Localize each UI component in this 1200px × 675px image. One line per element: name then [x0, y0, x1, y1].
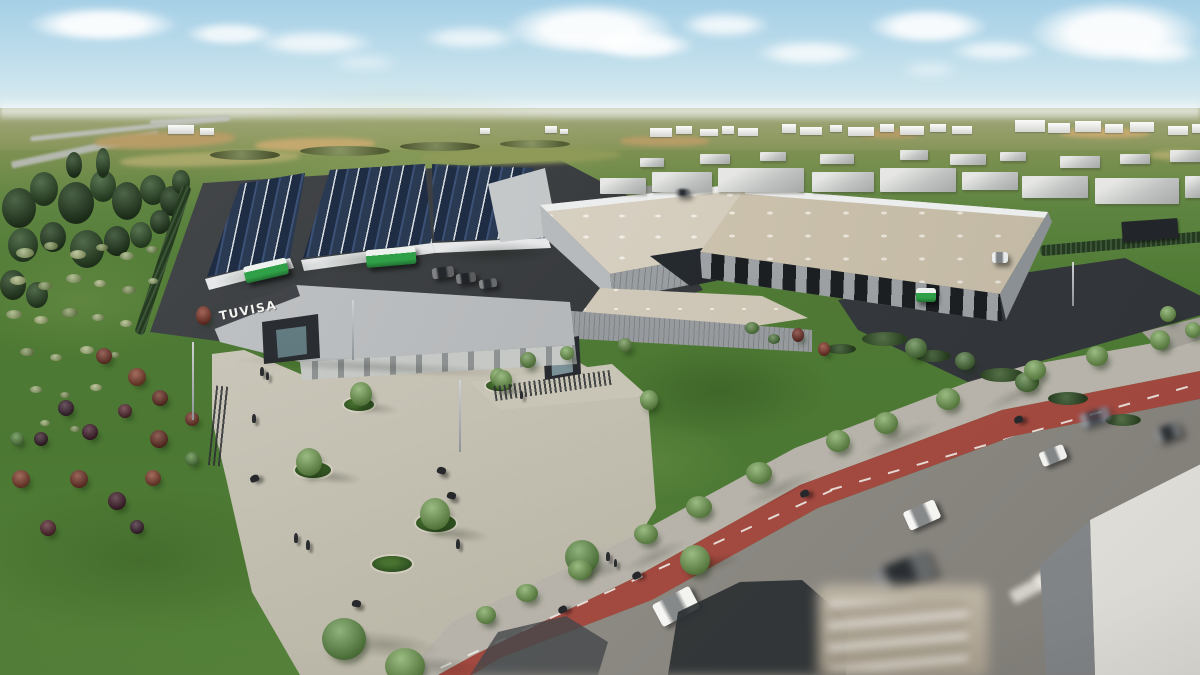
car — [1153, 421, 1183, 444]
person — [456, 539, 460, 549]
ibldg — [962, 172, 1018, 190]
scrub — [210, 150, 280, 160]
conifer — [0, 270, 26, 300]
cyclist — [446, 491, 457, 500]
pole — [1072, 262, 1074, 306]
otree — [10, 432, 24, 446]
ltree — [296, 448, 322, 476]
person — [606, 552, 610, 561]
otree — [12, 470, 30, 488]
scrub — [300, 146, 390, 156]
car — [478, 278, 497, 289]
dbldg — [952, 126, 972, 134]
car — [455, 272, 476, 285]
car — [431, 266, 454, 280]
dbldg — [930, 124, 946, 132]
ibldg — [1060, 156, 1100, 168]
dbldg — [738, 128, 758, 136]
dbldg — [900, 126, 924, 135]
bush — [6, 310, 22, 319]
cyclist — [436, 466, 447, 475]
bush — [745, 322, 759, 334]
board — [1121, 218, 1178, 242]
person — [252, 414, 256, 423]
ltree — [322, 618, 366, 660]
person — [260, 367, 264, 376]
dbldg — [200, 128, 214, 135]
person — [294, 533, 298, 543]
scrub — [500, 140, 570, 148]
bush — [94, 280, 106, 287]
ibldg — [700, 154, 730, 164]
bush — [70, 426, 80, 432]
ltree — [686, 496, 712, 518]
bush — [96, 244, 108, 251]
cloud — [28, 6, 178, 40]
ibldg — [600, 178, 646, 194]
bush — [34, 316, 48, 324]
foreground-blur-steps — [828, 600, 968, 670]
ltree — [476, 606, 496, 624]
ltree — [568, 560, 592, 580]
shade — [232, 352, 522, 381]
dbldg — [545, 126, 557, 133]
bush — [70, 250, 86, 259]
dbldg — [1168, 126, 1188, 135]
conifer — [66, 152, 82, 178]
otree — [108, 492, 126, 510]
otree — [34, 432, 48, 446]
dbldg — [700, 129, 718, 136]
pole — [192, 342, 194, 420]
cloud — [330, 55, 400, 69]
ltree — [905, 338, 927, 358]
bush — [62, 308, 78, 317]
otree — [70, 470, 88, 488]
dbldg — [830, 125, 842, 132]
ltree — [560, 346, 574, 360]
pole — [352, 300, 354, 360]
bush — [768, 334, 780, 344]
ibldg — [820, 154, 854, 164]
ibldg — [1185, 176, 1200, 198]
bush — [30, 386, 42, 393]
dbldg — [1105, 124, 1123, 133]
dbldg — [800, 127, 822, 135]
ibldg — [1095, 178, 1179, 204]
rack — [208, 385, 230, 466]
ltree — [936, 388, 960, 410]
shade — [860, 414, 940, 464]
cloud — [680, 12, 770, 36]
dbldg — [676, 126, 692, 134]
car — [1038, 444, 1068, 468]
dbldg — [1048, 123, 1070, 133]
person — [306, 540, 310, 550]
bush — [120, 320, 132, 327]
person — [266, 372, 269, 380]
car — [676, 189, 690, 196]
ltree — [746, 462, 772, 484]
otree — [118, 404, 132, 418]
cyclist — [351, 599, 361, 607]
cloud — [1120, 40, 1200, 62]
otree — [58, 400, 74, 416]
otree — [128, 368, 146, 386]
ibldg — [1000, 152, 1026, 161]
bus — [916, 288, 936, 302]
shade — [436, 240, 557, 266]
dbldg — [1075, 121, 1101, 132]
bush — [50, 354, 62, 361]
pole — [459, 380, 461, 452]
otree — [818, 342, 830, 356]
dbldg — [650, 128, 672, 137]
otree — [145, 470, 161, 486]
cyclist — [1013, 415, 1024, 425]
ibldg — [880, 168, 956, 192]
car — [992, 252, 1008, 263]
otree — [152, 390, 168, 406]
ltree — [1185, 322, 1200, 338]
bush — [10, 276, 26, 285]
person — [614, 559, 617, 567]
ltree — [1086, 346, 1108, 366]
ltree — [640, 390, 658, 410]
dbldg — [848, 127, 874, 136]
cloud — [900, 62, 960, 76]
ibldg — [1120, 154, 1150, 164]
ibldg — [950, 154, 986, 165]
cyclist — [557, 604, 568, 614]
scrub — [400, 142, 480, 151]
ibldg — [1170, 150, 1200, 162]
planter — [372, 556, 412, 572]
architectural-render-scene: TUVISA — [0, 0, 1200, 675]
bush — [146, 246, 158, 253]
ibldg — [760, 152, 786, 161]
bush — [16, 248, 34, 258]
ltree — [874, 412, 898, 434]
dbldg — [1192, 124, 1200, 133]
cloud — [755, 40, 865, 64]
cloud — [585, 30, 695, 58]
bush — [92, 314, 104, 321]
ltree — [350, 382, 372, 406]
bush — [120, 252, 134, 260]
conifer — [96, 148, 110, 178]
conifer — [58, 182, 94, 224]
bush — [38, 282, 52, 290]
ltree — [516, 584, 538, 602]
conifer — [30, 172, 58, 206]
ltree — [1150, 330, 1170, 350]
person — [520, 391, 523, 399]
scrub — [862, 332, 908, 346]
dbldg — [168, 125, 194, 134]
fieldpatch — [95, 130, 235, 151]
otree — [40, 520, 56, 536]
ibldg — [718, 168, 804, 192]
ltree — [1160, 306, 1176, 322]
ltree — [420, 498, 450, 530]
ltree — [520, 352, 536, 368]
dbldg — [1130, 122, 1154, 132]
otree — [196, 306, 211, 325]
bush — [44, 242, 58, 250]
otree — [130, 520, 144, 534]
ibldg — [812, 172, 874, 192]
fieldpatch — [620, 136, 710, 146]
otree — [792, 328, 804, 342]
otree — [82, 424, 98, 440]
bush — [20, 348, 34, 356]
otree — [185, 452, 199, 466]
bush — [122, 286, 136, 294]
bush — [66, 274, 82, 283]
bush — [148, 278, 158, 284]
dbldg — [722, 126, 734, 134]
cloud — [868, 8, 988, 42]
cloud — [950, 40, 1040, 60]
bush — [80, 346, 94, 354]
dbldg — [560, 129, 568, 134]
bush — [40, 420, 50, 426]
dbldg — [880, 124, 894, 132]
car — [1079, 406, 1112, 429]
cyclist — [249, 474, 260, 484]
car — [902, 499, 941, 531]
dbldg — [782, 124, 796, 133]
sprite-layer — [0, 0, 1200, 675]
conifer — [112, 182, 142, 220]
ltree — [826, 430, 850, 452]
conifer — [130, 222, 152, 248]
ibldg — [640, 158, 664, 167]
ibldg — [900, 150, 928, 160]
otree — [150, 430, 168, 448]
scrub — [1048, 392, 1088, 405]
ibldg — [1022, 176, 1088, 198]
ltree — [955, 352, 975, 370]
otree — [96, 348, 112, 364]
cloud — [255, 30, 375, 54]
bush — [90, 384, 102, 391]
dbldg — [1015, 120, 1045, 132]
bush — [60, 392, 70, 398]
ltree — [1024, 360, 1046, 380]
ltree — [618, 338, 632, 352]
ltree — [634, 524, 658, 544]
cyclist — [799, 489, 810, 499]
scrub — [826, 344, 856, 354]
ltree — [680, 545, 710, 575]
dbldg — [480, 128, 490, 134]
